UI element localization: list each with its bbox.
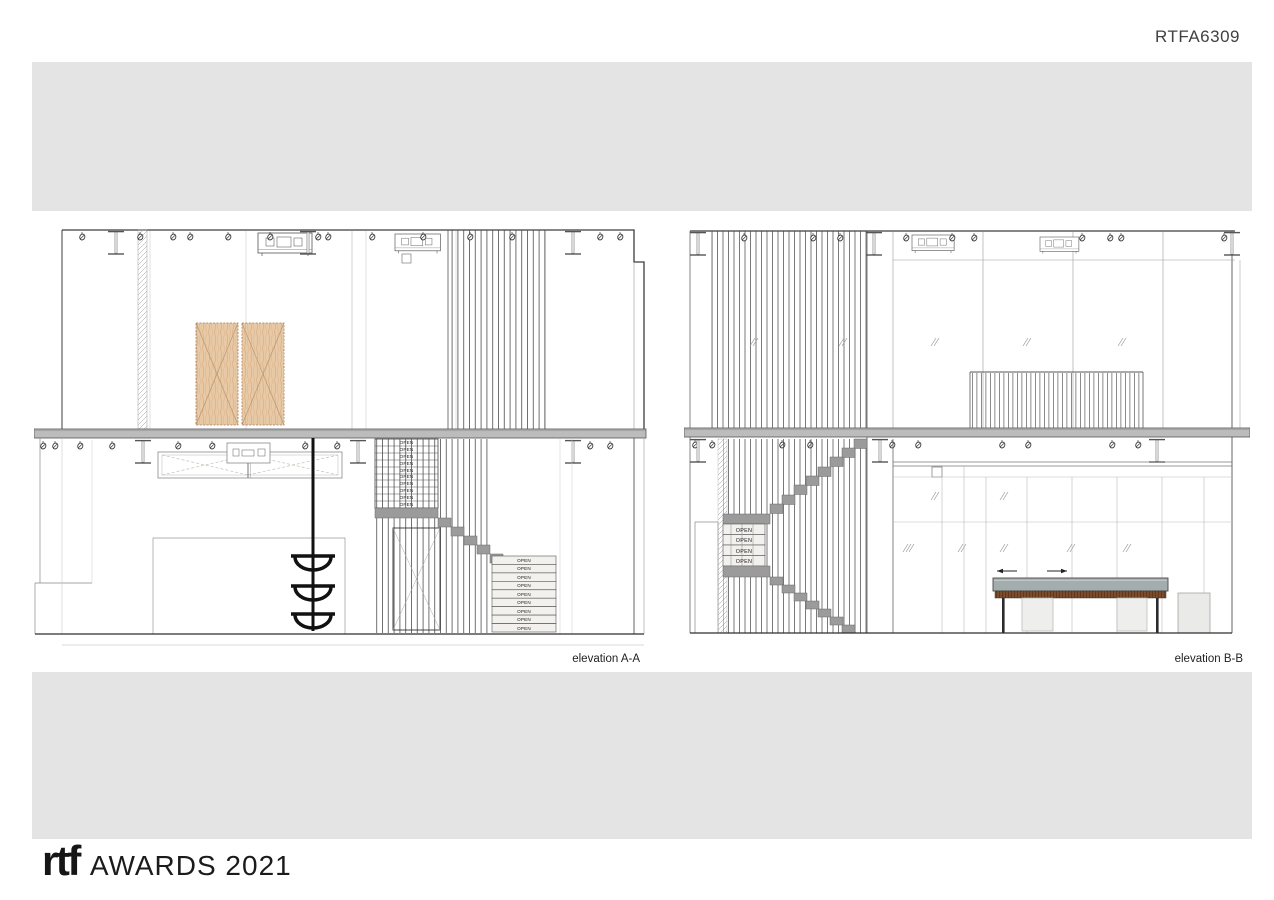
open-riser-label: OPEN [517,558,531,563]
hatched-column [138,230,147,429]
open-riser-label: OPEN [736,549,752,555]
top-gray-band [32,62,1252,211]
open-riser-label: OPEN [517,609,531,614]
elevation-a-label: elevation A-A [510,653,640,665]
side-wall-box [695,522,718,633]
open-riser-label: OPEN [517,592,531,597]
open-riser-label: OPEN [736,538,752,544]
rtf-awards-logo: rtf AWARDS 2021 [42,840,292,882]
side-cabinet-box [1178,593,1210,633]
reception-counter [993,578,1168,633]
elevation-a-drawing: OPEN OPEN OPEN OPEN OPEN OPEN OPEN OPEN … [34,224,648,648]
open-riser-label: OPEN [736,528,752,534]
bottom-gray-band [32,672,1252,839]
open-riser-label: OPEN [517,626,531,631]
mezzanine-balustrade [970,372,1143,428]
open-riser-label: OPEN [517,575,531,580]
hvac-unit-icon [258,233,440,263]
lower-floor-a: OPEN OPEN OPEN OPEN OPEN OPEN OPEN OPEN … [35,438,644,645]
project-code: RTFA6309 [1155,27,1240,47]
storefront [893,439,1232,633]
elevation-b-drawing: OPEN OPEN OPEN OPEN [684,224,1250,648]
open-riser-label: OPEN [517,566,531,571]
sliding-door-arrows [997,569,1067,573]
slat-screen-upper-a [448,230,545,429]
track-spotlight-icons [40,441,614,450]
stair-b: OPEN OPEN OPEN OPEN [723,437,867,633]
upper-floor-a [62,230,644,429]
hvac-unit-icon [912,235,1079,254]
open-riser-label: OPEN [517,617,531,622]
open-riser-label: OPEN [517,600,531,605]
open-riser-stack: OPEN OPEN OPEN OPEN [723,524,765,566]
lower-floor-b: OPEN OPEN OPEN OPEN [690,437,1232,633]
double-wood-doors [196,323,284,425]
floor-slab-b [684,428,1250,437]
open-riser-label: OPEN [736,559,752,565]
rtf-logo-mark: rtf [42,840,79,882]
slat-screen-upper-b [712,231,867,428]
floor-slab-a [34,429,646,438]
awards-text: AWARDS 2021 [90,852,292,880]
elevation-b-label: elevation B-B [1113,653,1243,665]
presentation-slide: RTFA6309 [0,0,1274,900]
stair-a: OPEN OPEN OPEN OPEN OPEN OPEN OPEN OPEN … [375,439,556,633]
open-riser-label: OPEN [517,583,531,588]
open-riser-stack: OPEN OPEN OPEN OPEN OPEN OPEN OPEN OPEN … [492,556,556,632]
